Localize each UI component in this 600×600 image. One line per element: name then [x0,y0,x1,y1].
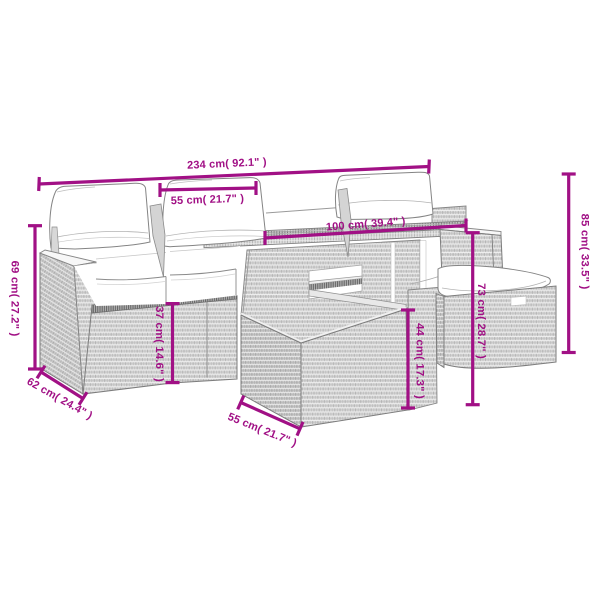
svg-text:37 cm( 14.6" ): 37 cm( 14.6" ) [153,306,165,382]
svg-text:55 cm( 21.7" ): 55 cm( 21.7" ) [171,193,245,208]
svg-text:73 cm( 28.7" ): 73 cm( 28.7" ) [475,283,487,359]
svg-text:85 cm( 33.5" ): 85 cm( 33.5" ) [579,214,591,290]
svg-text:69 cm( 27.2" ): 69 cm( 27.2" ) [9,261,21,337]
svg-text:44 cm( 17.3" ): 44 cm( 17.3" ) [414,323,426,399]
